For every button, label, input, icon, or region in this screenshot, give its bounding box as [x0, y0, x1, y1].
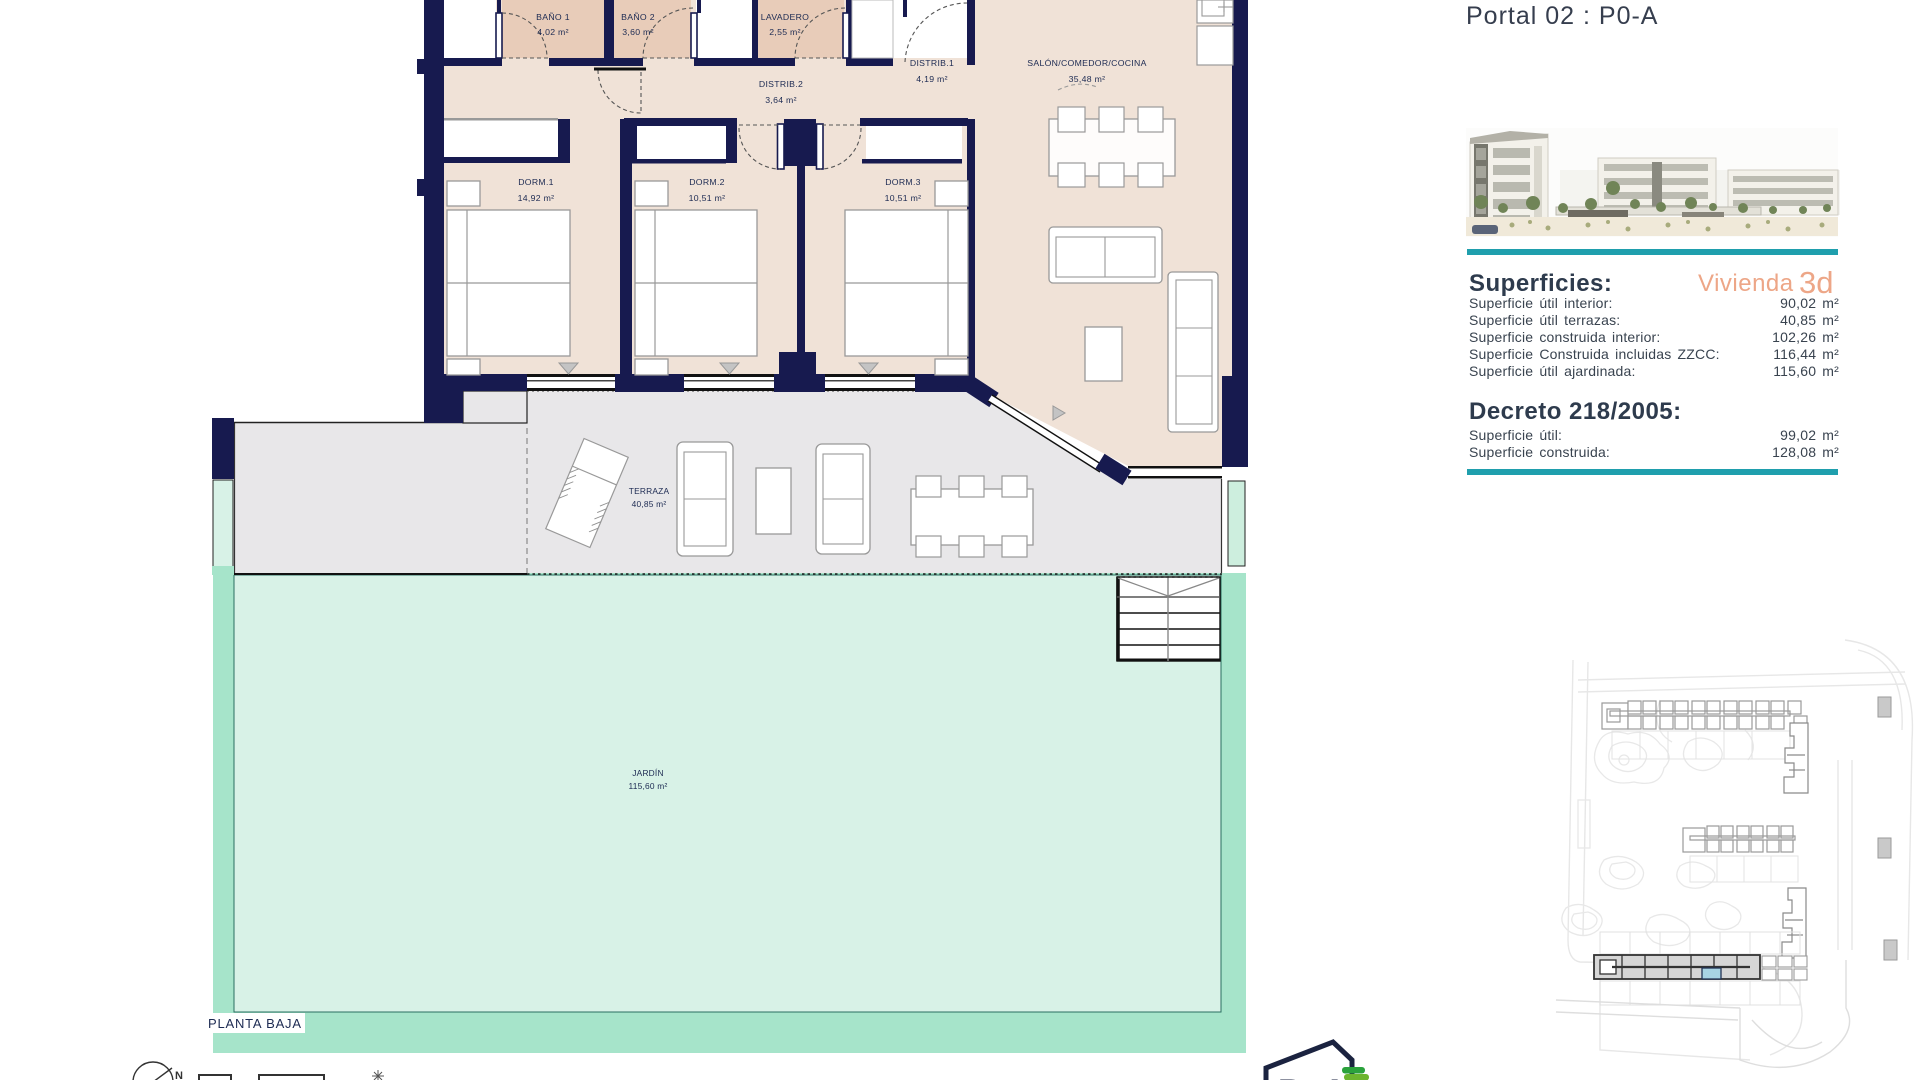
svg-text:BAÑO 1: BAÑO 1	[536, 12, 570, 22]
svg-text:Superficie construida:: Superficie construida:	[1469, 444, 1610, 460]
svg-text:4,02 m²: 4,02 m²	[537, 27, 569, 37]
svg-text:116,44 m²: 116,44 m²	[1773, 346, 1839, 362]
svg-text:DORM.3: DORM.3	[885, 177, 921, 187]
svg-text:Portal 02 : P0-A: Portal 02 : P0-A	[1466, 2, 1658, 30]
svg-text:128,08 m²: 128,08 m²	[1772, 444, 1839, 460]
svg-text:LAVADERO: LAVADERO	[761, 12, 809, 22]
svg-text:40,85 m²: 40,85 m²	[632, 499, 667, 509]
svg-text:Superficie útil ajardinada:: Superficie útil ajardinada:	[1469, 363, 1636, 379]
svg-text:90,02 m²: 90,02 m²	[1780, 295, 1839, 311]
svg-text:Superficie construida interior: Superficie construida interior:	[1469, 329, 1661, 345]
svg-text:Superficies:: Superficies:	[1469, 270, 1612, 297]
svg-text:DISTRIB.1: DISTRIB.1	[910, 58, 954, 68]
svg-text:99,02 m²: 99,02 m²	[1780, 427, 1839, 443]
svg-text:N: N	[175, 1070, 183, 1080]
svg-text:Vivienda: Vivienda	[1698, 270, 1794, 297]
svg-text:Superficie Construida incluida: Superficie Construida incluidas ZZCC:	[1469, 346, 1720, 362]
svg-text:BAÑO 2: BAÑO 2	[621, 12, 655, 22]
svg-text:115,60 m²: 115,60 m²	[629, 781, 668, 791]
svg-text:B+A: B+A	[1278, 1073, 1347, 1080]
svg-text:Superficie útil terrazas:: Superficie útil terrazas:	[1469, 312, 1620, 328]
svg-text:PLANTA BAJA: PLANTA BAJA	[208, 1016, 302, 1031]
svg-text:DORM.2: DORM.2	[689, 177, 725, 187]
svg-text:Decreto 218/2005:: Decreto 218/2005:	[1469, 398, 1682, 425]
svg-text:DISTRIB.2: DISTRIB.2	[759, 79, 803, 89]
svg-text:40,85 m²: 40,85 m²	[1780, 312, 1839, 328]
svg-text:115,60 m²: 115,60 m²	[1773, 363, 1839, 379]
svg-text:DORM.1: DORM.1	[518, 177, 554, 187]
svg-text:3,60 m²: 3,60 m²	[622, 27, 654, 37]
svg-text:Superficie útil:: Superficie útil:	[1469, 427, 1562, 443]
svg-text:10,51 m²: 10,51 m²	[885, 193, 922, 203]
svg-text:Superficie útil interior:: Superficie útil interior:	[1469, 295, 1613, 311]
svg-text:102,26 m²: 102,26 m²	[1772, 329, 1839, 345]
svg-text:2,55 m²: 2,55 m²	[769, 27, 801, 37]
svg-text:3,64 m²: 3,64 m²	[765, 95, 797, 105]
svg-text:14,92 m²: 14,92 m²	[518, 193, 555, 203]
svg-text:JARDÍN: JARDÍN	[632, 768, 663, 778]
svg-text:TERRAZA: TERRAZA	[629, 486, 670, 496]
svg-text:10,51 m²: 10,51 m²	[689, 193, 726, 203]
svg-text:35,48 m²: 35,48 m²	[1069, 74, 1106, 84]
svg-text:4,19 m²: 4,19 m²	[916, 74, 948, 84]
svg-text:SALÓN/COMEDOR/COCINA: SALÓN/COMEDOR/COCINA	[1027, 58, 1146, 68]
